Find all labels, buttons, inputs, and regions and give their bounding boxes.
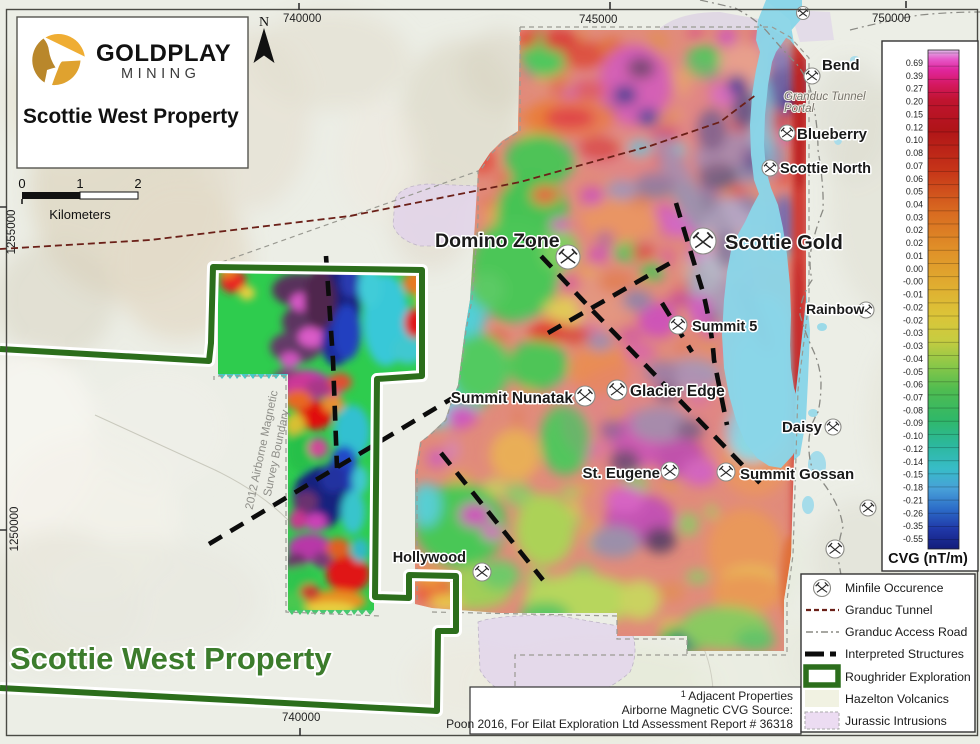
svg-text:-0.55: -0.55 xyxy=(903,534,923,544)
svg-text:-0.18: -0.18 xyxy=(903,483,923,493)
svg-text:-0.03: -0.03 xyxy=(903,341,923,351)
svg-text:GOLDPLAY: GOLDPLAY xyxy=(96,40,231,67)
svg-text:MINING: MINING xyxy=(121,66,200,82)
svg-text:740000: 740000 xyxy=(283,13,321,25)
svg-text:1250000: 1250000 xyxy=(9,507,21,552)
svg-text:St. Eugene: St. Eugene xyxy=(582,465,660,482)
svg-text:Summit Gossan: Summit Gossan xyxy=(740,466,854,483)
svg-text:0.05: 0.05 xyxy=(906,187,923,197)
svg-text:0.06: 0.06 xyxy=(906,174,923,184)
svg-text:Scottie Gold: Scottie Gold xyxy=(725,232,843,254)
svg-text:0.01: 0.01 xyxy=(906,251,923,261)
svg-text:Blueberry: Blueberry xyxy=(797,126,868,143)
svg-text:0.10: 0.10 xyxy=(906,135,923,145)
svg-text:0.15: 0.15 xyxy=(906,110,923,120)
svg-text:1: 1 xyxy=(76,176,83,191)
svg-text:-0.35: -0.35 xyxy=(903,521,923,531)
svg-text:-0.12: -0.12 xyxy=(903,444,923,454)
svg-text:0.12: 0.12 xyxy=(906,122,923,132)
svg-text:0: 0 xyxy=(18,176,25,191)
svg-text:-0.10: -0.10 xyxy=(903,431,923,441)
svg-text:Kilometers: Kilometers xyxy=(49,207,111,222)
svg-text:-0.07: -0.07 xyxy=(903,393,923,403)
svg-text:0.20: 0.20 xyxy=(906,97,923,107)
svg-text:Granduc Access Road: Granduc Access Road xyxy=(845,625,968,639)
svg-text:0.39: 0.39 xyxy=(906,71,923,81)
svg-text:Roughrider Exploration: Roughrider Exploration xyxy=(845,670,971,684)
svg-text:CVG (nT/m): CVG (nT/m) xyxy=(888,551,968,567)
svg-text:-0.03: -0.03 xyxy=(903,328,923,338)
svg-text:-0.08: -0.08 xyxy=(903,405,923,415)
svg-text:-0.02: -0.02 xyxy=(903,302,923,312)
svg-text:Airborne Magnetic CVG Source:: Airborne Magnetic CVG Source: xyxy=(622,703,793,717)
svg-text:0.03: 0.03 xyxy=(906,212,923,222)
svg-text:-0.05: -0.05 xyxy=(903,367,923,377)
svg-text:Jurassic Intrusions: Jurassic Intrusions xyxy=(845,714,947,728)
svg-text:740000: 740000 xyxy=(282,712,320,724)
svg-text:1255000: 1255000 xyxy=(6,210,18,255)
svg-text:0.04: 0.04 xyxy=(906,200,923,210)
svg-text:-0.26: -0.26 xyxy=(903,508,923,518)
svg-text:Poon 2016, For Eilat Explorati: Poon 2016, For Eilat Exploration Ltd Ass… xyxy=(446,717,793,731)
svg-text:0.02: 0.02 xyxy=(906,225,923,235)
svg-text:Domino Zone: Domino Zone xyxy=(435,230,560,252)
svg-text:0.02: 0.02 xyxy=(906,238,923,248)
svg-text:2: 2 xyxy=(134,176,141,191)
svg-text:-0.21: -0.21 xyxy=(903,495,923,505)
svg-text:0.00: 0.00 xyxy=(906,264,923,274)
svg-text:0.27: 0.27 xyxy=(906,84,923,94)
svg-text:0.07: 0.07 xyxy=(906,161,923,171)
svg-text:Interpreted Structures: Interpreted Structures xyxy=(845,647,964,661)
svg-text:Scottie West Property: Scottie West Property xyxy=(23,105,239,128)
svg-text:Scottie North: Scottie North xyxy=(780,161,871,177)
svg-text:745000: 745000 xyxy=(579,14,617,26)
svg-text:0.69: 0.69 xyxy=(906,58,923,68)
svg-text:-0.09: -0.09 xyxy=(903,418,923,428)
svg-text:Granduc Tunnel: Granduc Tunnel xyxy=(845,603,933,617)
svg-text:Glacier Edge: Glacier Edge xyxy=(630,383,725,400)
svg-text:1 Adjacent Properties: 1 Adjacent Properties xyxy=(681,689,793,703)
svg-text:-0.04: -0.04 xyxy=(903,354,923,364)
svg-text:Summit 5: Summit 5 xyxy=(692,319,757,335)
svg-text:-0.01: -0.01 xyxy=(903,290,923,300)
svg-text:-0.06: -0.06 xyxy=(903,380,923,390)
svg-text:-0.15: -0.15 xyxy=(903,470,923,480)
svg-text:750000: 750000 xyxy=(872,13,910,25)
svg-text:Bend: Bend xyxy=(822,57,860,74)
svg-text:Rainbow: Rainbow xyxy=(806,301,864,317)
svg-text:Portal: Portal xyxy=(784,103,814,115)
svg-text:Daisy: Daisy xyxy=(782,419,823,436)
svg-text:Scottie West Property: Scottie West Property xyxy=(10,641,332,676)
svg-text:-0.00: -0.00 xyxy=(903,277,923,287)
svg-text:Hollywood: Hollywood xyxy=(393,550,466,566)
svg-text:-0.14: -0.14 xyxy=(903,457,923,467)
svg-text:N: N xyxy=(259,15,269,30)
svg-text:Minfile Occurence: Minfile Occurence xyxy=(845,581,944,595)
svg-text:Hazelton Volcanics: Hazelton Volcanics xyxy=(845,692,949,706)
svg-text:0.08: 0.08 xyxy=(906,148,923,158)
svg-text:-0.02: -0.02 xyxy=(903,315,923,325)
svg-text:Granduc Tunnel: Granduc Tunnel xyxy=(784,91,866,103)
svg-text:Summit Nunatak: Summit Nunatak xyxy=(451,390,574,407)
